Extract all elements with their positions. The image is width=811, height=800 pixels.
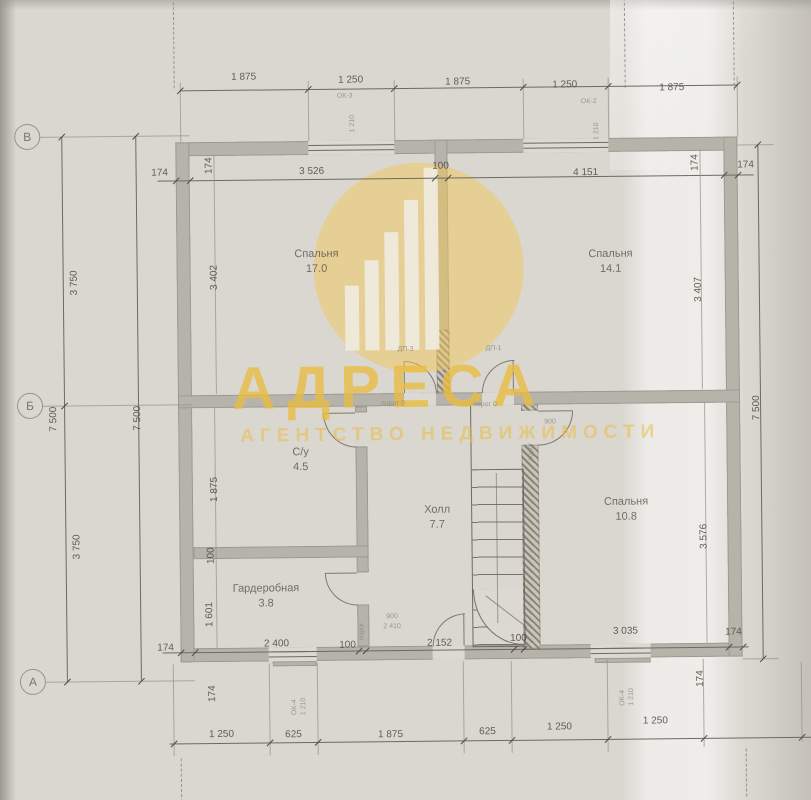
dim-label: 100 (432, 161, 449, 172)
room-name: Холл (424, 504, 450, 516)
door-dim-tag: 900 (544, 418, 556, 425)
dim-label: 174 (725, 626, 742, 637)
threshold-tag: порог (527, 443, 534, 461)
watermark-logo-bar (365, 260, 380, 350)
room-area: 17.0 (306, 263, 328, 275)
threshold-tag: порог 0 (473, 401, 497, 408)
room-name: С/у (292, 446, 309, 458)
dim-label: 1 875 (378, 729, 403, 740)
sill-tab-bottom-right (595, 657, 651, 663)
watermark-logo-bar (345, 285, 360, 350)
watermark-logo-bar (404, 200, 420, 350)
dim-label: 1 250 (552, 79, 577, 90)
watermark-title: АДРЕСА (232, 351, 546, 423)
sill-tab-bottom-left (273, 661, 317, 666)
room-label-wardrobe: Гардеробная 3.8 (233, 581, 300, 612)
dim-label: 174 (203, 157, 214, 174)
door-arc-wardrobe (325, 573, 358, 606)
axis-circle-b: Б (17, 393, 43, 419)
window-bottom-right (591, 643, 651, 658)
room-area: 14.1 (600, 263, 622, 275)
window-tag: ОК-2 (581, 98, 597, 105)
room-label-bedroom-topright: Спальня 14.1 (588, 247, 633, 277)
floor-plan-drawing: АДРЕСА АГЕНТСТВО НЕДВИЖИМОСТИ В Б А (0, 0, 811, 800)
dashed-grid-line (181, 758, 182, 800)
dim-label: 3 576 (698, 524, 709, 549)
window-top-left (308, 140, 394, 155)
window-dim-tag: 1 210 (628, 688, 635, 706)
room-area: 7.7 (430, 519, 445, 531)
axis-circle-a: А (20, 669, 46, 695)
room-area: 10.8 (615, 511, 637, 523)
dim-line-room-right-top (699, 151, 702, 389)
room-name: Гардеробная (233, 582, 300, 595)
room-label-bedroom-bottomright: Спальня 10.8 (604, 494, 649, 524)
dim-label: 1 250 (643, 715, 668, 726)
dim-label: 2 152 (427, 638, 452, 649)
dim-label: 1 250 (547, 721, 572, 732)
window-dim-tag: 1 210 (349, 115, 356, 133)
watermark-subtitle: АГЕНТСТВО НЕДВИЖИМОСТИ (240, 421, 660, 447)
dashed-grid-line (733, 0, 735, 91)
door-dim-tag: 2 410 (383, 623, 401, 630)
window-tag: ОК-4 (619, 690, 626, 706)
watermark-logo-bar (384, 232, 399, 350)
dim-label: 174 (689, 154, 700, 171)
dim-label: 1 601 (204, 602, 215, 627)
dim-label: 3 750 (69, 270, 80, 295)
dim-label: 4 151 (573, 167, 598, 178)
door-tag: ДП-3 (397, 346, 413, 353)
dim-label: 100 (510, 633, 527, 644)
dim-label: 1 250 (338, 74, 363, 85)
room-name: Спальня (588, 248, 632, 260)
dim-label: 1 875 (659, 82, 684, 93)
dim-label: 3 407 (693, 277, 704, 302)
room-name: Спальня (294, 248, 338, 260)
dim-label: 3 402 (209, 265, 220, 290)
room-label-hall: Холл 7.7 (424, 503, 450, 533)
door-tag: ДП-1 (485, 345, 501, 352)
dim-label: 7 500 (751, 395, 762, 420)
dim-label: 174 (695, 670, 706, 687)
dashed-grid-line (746, 748, 748, 796)
threshold-tag: порог (358, 622, 365, 640)
room-name: Спальня (604, 495, 648, 507)
dim-line-bottom-outer (170, 737, 811, 745)
wall-exterior-top (175, 137, 737, 157)
window-tag: ОК-3 (337, 93, 353, 100)
dim-label: 1 875 (445, 76, 470, 87)
dim-label: 625 (285, 729, 302, 740)
dim-label: 7 500 (48, 407, 59, 432)
dim-label: 625 (479, 726, 496, 737)
dashed-grid-line (624, 0, 626, 88)
dim-label: 174 (207, 685, 218, 702)
threshold-tag: порог 0 (381, 400, 405, 407)
dim-label: 1 250 (209, 729, 234, 740)
window-dim-tag: 1 210 (300, 698, 307, 716)
dim-label: 2 400 (264, 638, 289, 649)
dim-label: 7 500 (132, 406, 143, 431)
window-dim-tag: 1 210 (593, 122, 600, 140)
dim-label: 3 035 (613, 626, 638, 637)
window-top-right (523, 138, 608, 153)
room-label-su: С/у 4.5 (292, 445, 309, 475)
room-label-bedroom-topleft: Спальня 17.0 (294, 247, 339, 277)
dim-label: 3 750 (71, 534, 82, 559)
dim-label: 100 (339, 640, 356, 651)
dim-label: 1 875 (209, 477, 220, 502)
wall-su-wardrobe-divider (194, 545, 369, 559)
extension-line (801, 662, 803, 742)
door-dim-tag: 900 (386, 613, 398, 620)
dim-label: 174 (737, 159, 754, 170)
dim-label: 1 875 (231, 72, 256, 83)
room-area: 4.5 (293, 461, 308, 473)
dim-label: 174 (151, 167, 168, 178)
dim-label: 100 (206, 547, 217, 564)
dim-label: 3 526 (299, 166, 324, 177)
scanned-floor-plan: АДРЕСА АГЕНТСТВО НЕДВИЖИМОСТИ В Б А (0, 0, 811, 800)
window-tag: ОК-4 (291, 699, 298, 715)
dim-label: 174 (157, 642, 174, 653)
watermark-logo-bar (424, 168, 440, 350)
room-area: 3.8 (258, 597, 273, 609)
axis-circle-v: В (14, 124, 40, 150)
dashed-grid-line (173, 2, 175, 88)
